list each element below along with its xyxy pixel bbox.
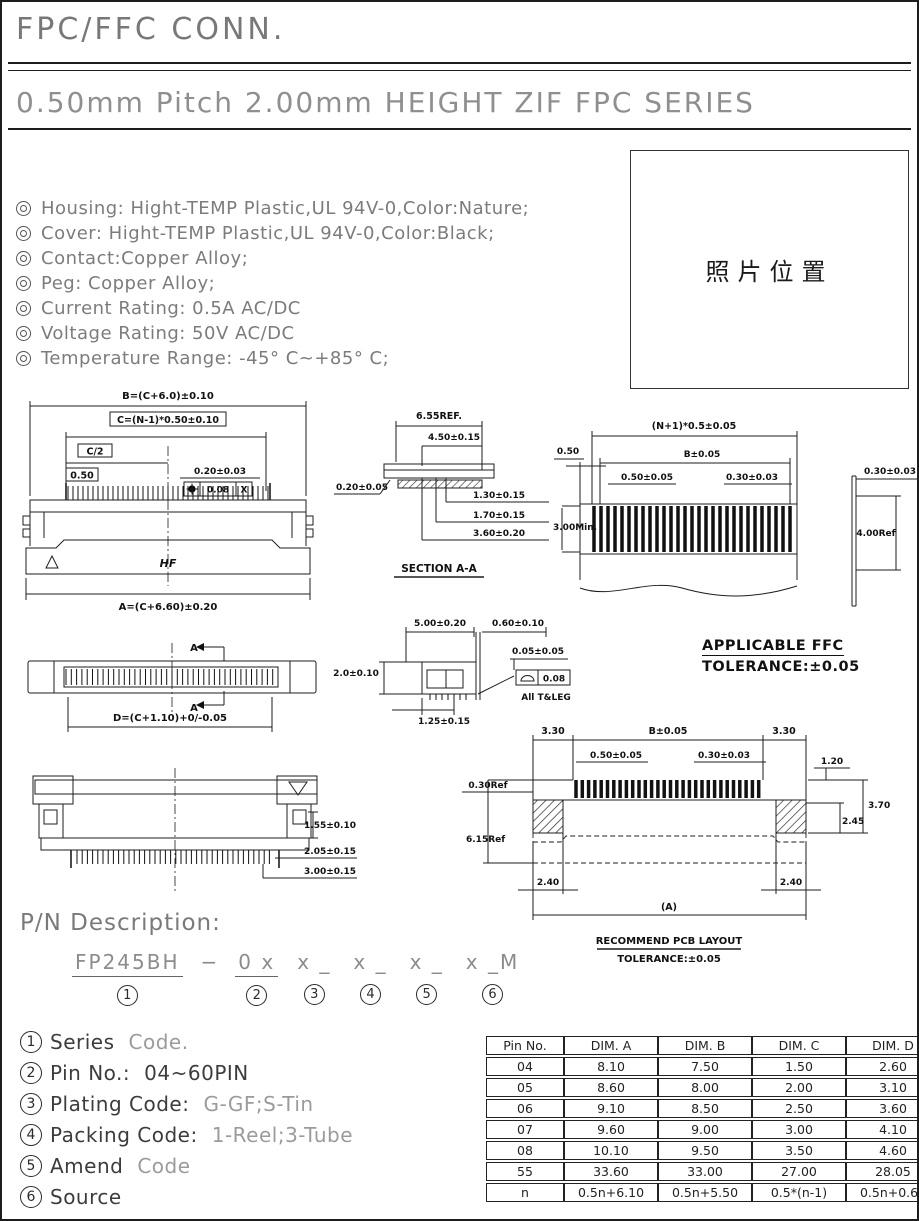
pn-marker: 4: [360, 984, 381, 1005]
dim-label: 0.20±0.03: [194, 467, 246, 477]
spec-item: Housing: Hight-TEMP Plastic,UL 94V-0,Col…: [16, 196, 529, 221]
table-cell: 0.5n+5.50: [658, 1183, 752, 1202]
peg-pad-left: [533, 800, 563, 833]
dim-label: 0.50: [557, 447, 579, 457]
dim-label: 3.00Min.: [553, 523, 597, 533]
table-cell: 33.60: [564, 1162, 658, 1181]
pn-segment-text: 0 x: [235, 950, 278, 977]
pn-segment-text: x _: [294, 950, 334, 976]
dim-label: 1.70±0.15: [473, 511, 525, 521]
dim-label: 3.60±0.20: [473, 529, 525, 539]
spec-text: Current Rating: 0.5A AC/DC: [41, 298, 301, 319]
table-cell: 3.50: [752, 1141, 846, 1160]
table-cell: 06: [486, 1099, 564, 1118]
legend-num: 5: [20, 1155, 42, 1177]
dim-label: (A): [661, 902, 677, 913]
dim-label: 2.40: [537, 878, 559, 888]
dim-label: 3.70: [868, 801, 890, 811]
legend-num: 6: [20, 1186, 42, 1208]
table-row: 069.108.502.503.60: [486, 1099, 919, 1118]
pn-marker: 3: [304, 984, 325, 1005]
legend-num: 3: [20, 1093, 42, 1115]
bullseye-icon: [16, 251, 31, 266]
legend-label: Packing Code:: [50, 1123, 198, 1147]
table-header-cell: DIM. C: [752, 1036, 846, 1055]
legend-label: Pin No.:: [50, 1061, 130, 1085]
legend-num: 4: [20, 1124, 42, 1146]
table-header-cell: Pin No.: [486, 1036, 564, 1055]
legend-label: Plating Code:: [50, 1092, 189, 1116]
table-row: 0810.109.503.504.60: [486, 1141, 919, 1160]
table-header-cell: DIM. D: [846, 1036, 919, 1055]
photo-label: 照片位置: [706, 252, 834, 287]
pn-segment: x _4: [350, 950, 390, 1005]
legend-list: 1SeriesCode.2Pin No.:04~60PIN3Plating Co…: [20, 1030, 353, 1216]
spec-list: Housing: Hight-TEMP Plastic,UL 94V-0,Col…: [16, 196, 529, 371]
table-cell: 3.00: [752, 1120, 846, 1139]
table-cell: n: [486, 1183, 564, 1202]
pn-segment: 0 x2: [235, 950, 278, 1006]
note-title: APPLICABLE FFC: [702, 638, 844, 656]
dim-label: 3.00±0.15: [304, 867, 356, 877]
dim-label: 2.45: [842, 817, 864, 827]
ffc-drawing: (N+1)*0.5±0.05 0.50 B±0.05 0.50±0.05 0.3…: [552, 418, 919, 625]
dim-label: B±0.05: [649, 726, 688, 737]
dim-label: 5.00±0.20: [414, 619, 466, 629]
dim-label: C=(N-1)*0.50±0.10: [117, 415, 219, 426]
bullseye-icon: [16, 201, 31, 216]
table-cell: 08: [486, 1141, 564, 1160]
legend-value: 04~60PIN: [144, 1061, 249, 1085]
dim-label: 0.30±0.03: [864, 467, 916, 477]
table-cell: 55: [486, 1162, 564, 1181]
table-header-cell: DIM. A: [564, 1036, 658, 1055]
table-cell: 3.10: [846, 1078, 919, 1097]
flatness-icon: [521, 676, 534, 682]
legend-item: 2Pin No.:04~60PIN: [20, 1061, 353, 1085]
spec-text: Peg: Copper Alloy;: [41, 273, 215, 294]
pn-segment-text: x _: [407, 950, 447, 976]
section-arrow-label: A: [190, 643, 198, 654]
pn-marker: 5: [416, 984, 437, 1005]
section-aa-drawing: 6.55REF. 4.50±0.15 0.20±0.05 1.30±0.15 1…: [334, 400, 572, 586]
bullseye-icon: [16, 276, 31, 291]
pn-marker: 6: [482, 984, 503, 1005]
pn-segment: x _5: [407, 950, 447, 1005]
table-cell: 9.50: [658, 1141, 752, 1160]
spec-item: Current Rating: 0.5A AC/DC: [16, 296, 529, 321]
peg-pad-right: [776, 800, 806, 833]
table-cell: 0.5n+6.10: [564, 1183, 658, 1202]
dim-label: (N+1)*0.5±0.05: [652, 421, 736, 432]
legend-value: Code.: [129, 1030, 189, 1054]
bullseye-icon: [16, 301, 31, 316]
dim-label: 6.55REF.: [416, 411, 462, 422]
table-cell: 05: [486, 1078, 564, 1097]
pn-segment: x _M6: [463, 950, 522, 1005]
bullseye-icon: [16, 226, 31, 241]
pn-segment: x _3: [294, 950, 334, 1005]
legend-value: Code: [137, 1154, 190, 1178]
dim-label: 0.05±0.05: [512, 647, 564, 657]
pn-marker: 1: [117, 985, 138, 1006]
gdt-value: 0.08: [543, 675, 565, 685]
table-cell: 2.50: [752, 1099, 846, 1118]
table-cell: 10.10: [564, 1141, 658, 1160]
table-cell: 28.05: [846, 1162, 919, 1181]
conductor-comb: [594, 506, 790, 552]
legend-item: 3Plating Code:G-GF;S-Tin: [20, 1092, 353, 1116]
table-cell: 8.10: [564, 1057, 658, 1076]
note-tolerance: TOLERANCE:±0.05: [702, 659, 860, 675]
dim-label: 2.40: [780, 878, 802, 888]
table-cell: 27.00: [752, 1162, 846, 1181]
legend-num: 1: [20, 1031, 42, 1053]
legend-value: 1-Reel;3-Tube: [212, 1123, 353, 1147]
legend-item: 1SeriesCode.: [20, 1030, 353, 1054]
table-cell: 1.50: [752, 1057, 846, 1076]
dim-label: 2.05±0.15: [304, 847, 356, 857]
dim-label: 0.30±0.03: [726, 473, 778, 483]
dim-table-head-row: Pin No.DIM. ADIM. BDIM. CDIM. D: [486, 1036, 919, 1055]
pcb-layout-drawing: 3.30 B±0.05 3.30 0.50±0.05 0.30±0.03 1.2…: [458, 718, 919, 966]
dim-label: B=(C+6.0)±0.10: [122, 391, 214, 402]
spec-text: Housing: Hight-TEMP Plastic,UL 94V-0,Col…: [41, 198, 529, 219]
legend-item: 6Source: [20, 1185, 353, 1209]
pin-comb: [66, 669, 273, 685]
dim-label: 0.60±0.10: [492, 619, 544, 629]
table-row: n0.5n+6.100.5n+5.500.5*(n-1)0.5n+0.60: [486, 1183, 919, 1202]
table-cell: 2.00: [752, 1078, 846, 1097]
header-rule-2: [8, 70, 911, 71]
table-cell: 9.00: [658, 1120, 752, 1139]
pn-segment-text: x _M: [463, 950, 522, 976]
dim-label: 1.20: [821, 757, 843, 767]
header-rule-1: [8, 62, 911, 64]
pn-heading: P/N Description:: [20, 910, 221, 936]
dim-label: 6.15Ref: [466, 835, 505, 845]
table-cell: 8.60: [564, 1078, 658, 1097]
table-cell: 8.00: [658, 1078, 752, 1097]
legend-num: 2: [20, 1062, 42, 1084]
dim-label: 0.50±0.05: [590, 751, 642, 761]
pcb-tolerance: TOLERANCE:±0.05: [617, 954, 721, 965]
gdt-datum: X: [241, 486, 248, 496]
gdt-note: All T&LEG: [521, 693, 571, 703]
table-header-cell: DIM. B: [658, 1036, 752, 1055]
spec-text: Temperature Range: -45° C~+85° C;: [41, 348, 389, 369]
table-row: 5533.6033.0027.0028.05: [486, 1162, 919, 1181]
foot-comb: [430, 694, 466, 700]
table-cell: 3.60: [846, 1099, 919, 1118]
bullseye-icon: [16, 326, 31, 341]
pn-dash: −: [201, 950, 218, 976]
dim-label: 3.30: [541, 726, 565, 737]
legend-label: Source: [50, 1185, 122, 1209]
table-cell: 4.10: [846, 1120, 919, 1139]
spec-item: Peg: Copper Alloy;: [16, 271, 529, 296]
dim-label: 4.50±0.15: [428, 433, 480, 443]
section-caption: SECTION A-A: [401, 563, 477, 575]
spec-item: Cover: Hight-TEMP Plastic,UL 94V-0,Color…: [16, 221, 529, 246]
legend-label: Series: [50, 1030, 115, 1054]
dim-label: C/2: [86, 447, 103, 458]
front-view-drawing: B=(C+6.0)±0.10 C=(N-1)*0.50±0.10 C/2 0.5…: [18, 388, 320, 616]
spec-text: Voltage Rating: 50V AC/DC: [41, 323, 295, 344]
legend-item: 4Packing Code:1-Reel;3-Tube: [20, 1123, 353, 1147]
dim-label: 0.30±0.03: [698, 751, 750, 761]
dim-label: 1.30±0.15: [473, 491, 525, 501]
table-row: 058.608.002.003.10: [486, 1078, 919, 1097]
dim-label: 0.50±0.05: [621, 473, 673, 483]
page-title: FPC/FFC CONN.: [16, 12, 285, 47]
dim-table-body: 048.107.501.502.60058.608.002.003.10069.…: [486, 1057, 919, 1202]
dimension-table: Pin No.DIM. ADIM. BDIM. CDIM. D 048.107.…: [486, 1034, 919, 1204]
spec-text: Contact:Copper Alloy;: [41, 248, 248, 269]
dim-label: 0.50: [70, 471, 94, 482]
table-cell: 4.60: [846, 1141, 919, 1160]
table-cell: 9.60: [564, 1120, 658, 1139]
table-cell: 8.50: [658, 1099, 752, 1118]
pin-comb: [77, 850, 269, 864]
table-cell: 2.60: [846, 1057, 919, 1076]
pn-code-row: FP245BH1−0 x2x _3x _4x _5x _M6: [72, 950, 522, 1006]
table-cell: 04: [486, 1057, 564, 1076]
bullseye-icon: [16, 351, 31, 366]
table-cell: 07: [486, 1120, 564, 1139]
pn-marker: 2: [246, 985, 267, 1006]
legend-item: 5AmendCode: [20, 1154, 353, 1178]
table-cell: 33.00: [658, 1162, 752, 1181]
title-rule: [8, 128, 911, 130]
datasheet-page: FPC/FFC CONN. 0.50mm Pitch 2.00mm HEIGHT…: [0, 0, 919, 1221]
pad-comb: [576, 780, 759, 798]
photo-placeholder: 照片位置: [630, 150, 909, 389]
dim-label: 0.20±0.05: [336, 483, 388, 493]
table-row: 048.107.501.502.60: [486, 1057, 919, 1076]
dim-label: D=(C+1.10)+0/-0.05: [113, 713, 227, 724]
dim-label: A=(C+6.60)±0.20: [119, 602, 218, 613]
table-cell: 0.5n+0.60: [846, 1183, 919, 1202]
legend-label: Amend: [50, 1154, 123, 1178]
dim-label: 3.30: [772, 726, 796, 737]
pn-segment-text: x _: [350, 950, 390, 976]
spec-item: Temperature Range: -45° C~+85° C;: [16, 346, 529, 371]
table-row: 079.609.003.004.10: [486, 1120, 919, 1139]
spec-text: Cover: Hight-TEMP Plastic,UL 94V-0,Color…: [41, 223, 495, 244]
dim-label: 2.0±0.10: [333, 669, 379, 679]
pn-segment: FP245BH1: [72, 950, 183, 1006]
spec-item: Contact:Copper Alloy;: [16, 246, 529, 271]
pn-segment-text: FP245BH: [72, 950, 183, 977]
applicable-ffc-note: APPLICABLE FFC TOLERANCE:±0.05: [702, 638, 860, 675]
dim-label: 1.55±0.10: [304, 821, 356, 831]
table-cell: 0.5*(n-1): [752, 1183, 846, 1202]
dim-label: 4.00Ref: [856, 529, 895, 539]
spec-item: Voltage Rating: 50V AC/DC: [16, 321, 529, 346]
pcb-caption: RECOMMEND PCB LAYOUT: [596, 936, 743, 947]
table-cell: 7.50: [658, 1057, 752, 1076]
rear-view-drawing: 1.55±0.10 2.05±0.15 3.00±0.15: [17, 768, 357, 904]
polarity-triangle: [289, 782, 307, 795]
legend-value: G-GF;S-Tin: [203, 1092, 313, 1116]
table-cell: 9.10: [564, 1099, 658, 1118]
series-title: 0.50mm Pitch 2.00mm HEIGHT ZIF FPC SERIE…: [16, 86, 755, 119]
dim-label: B±0.05: [684, 450, 721, 460]
top-view-drawing: A A D=(C+1.10)+0/-0.05: [18, 629, 336, 747]
